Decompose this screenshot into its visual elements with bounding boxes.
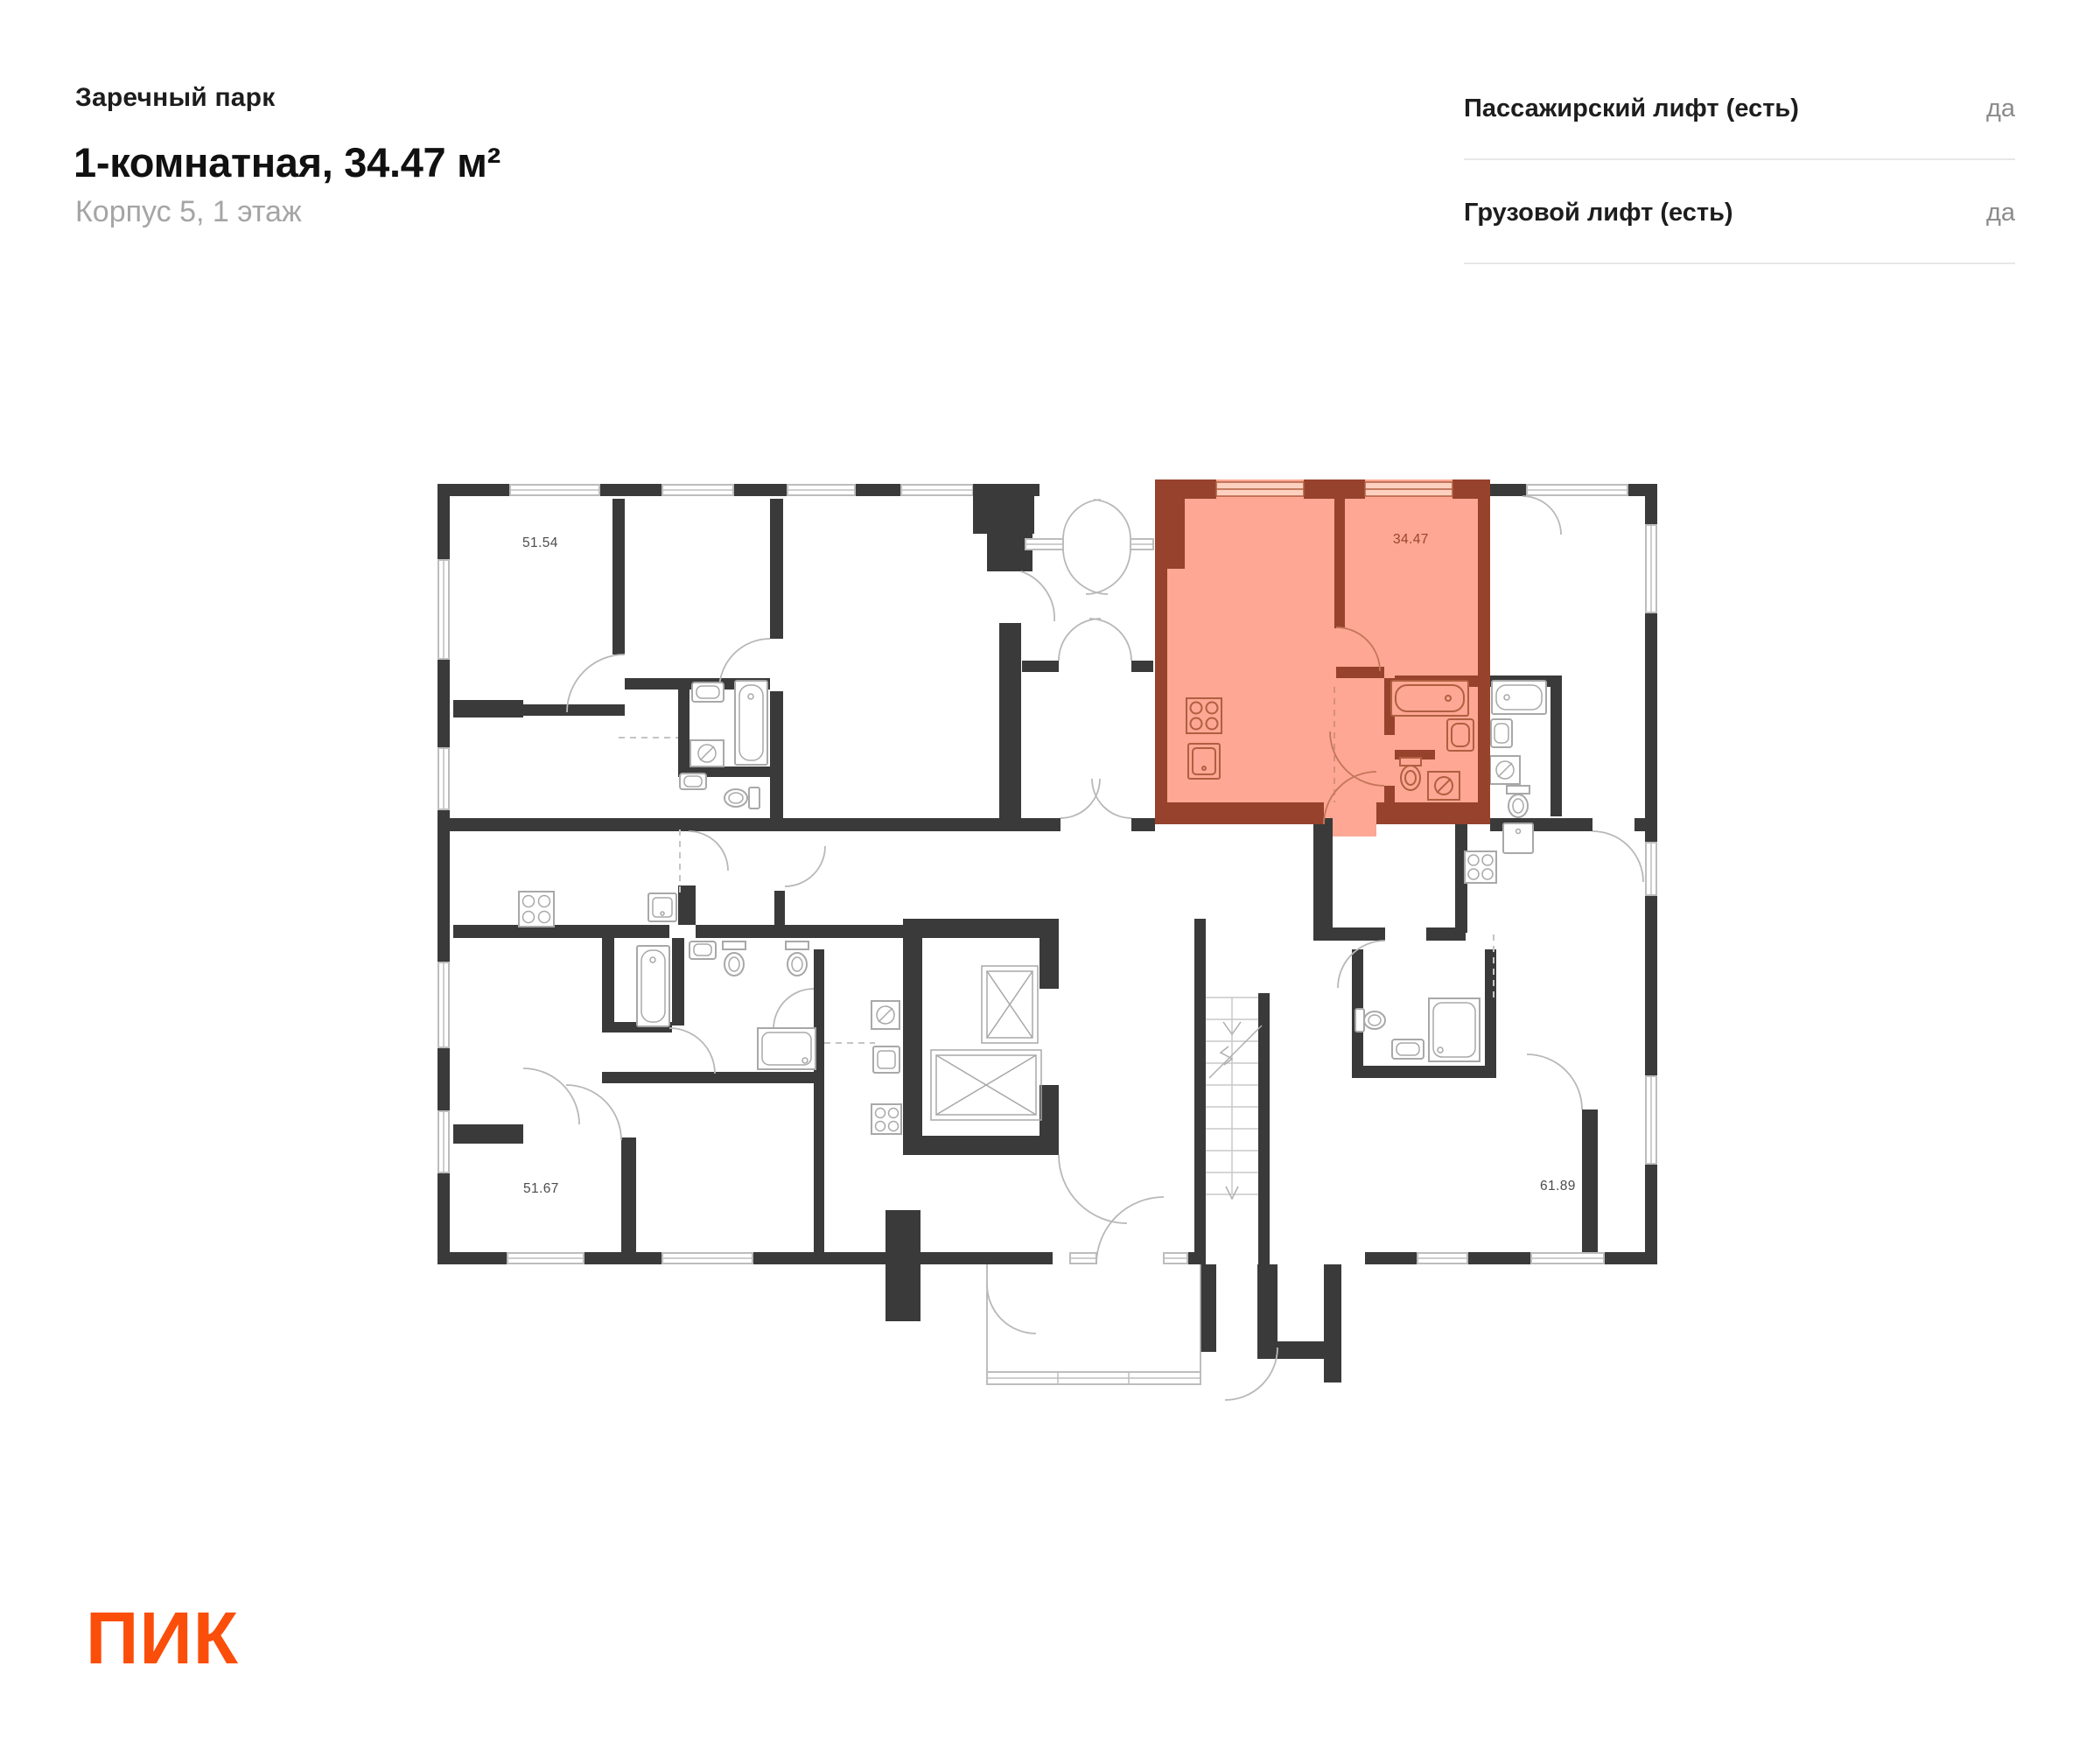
stove-icon [1465,851,1496,883]
window-bottom-6 [1531,1253,1604,1263]
bathtub-icon [735,681,767,765]
sink-icon [1491,719,1512,747]
area-label-61-89: 61.89 [1540,1179,1576,1193]
entrance-door-arc [1096,1197,1164,1264]
area-label-34-47-highlighted: 34.47 [1393,532,1429,547]
toilet-icon [1400,758,1421,790]
window-bottom-5 [1417,1253,1467,1263]
toilet-icon [786,941,808,976]
kitchen-sink-icon [1503,823,1533,853]
window-top-1 [510,485,599,495]
exterior-wall-right [1645,484,1657,1264]
window-top-5 [1527,485,1627,495]
floorplan-page: { "header": { "project": "Заречный парк"… [0,0,2100,1750]
toilet-icon [723,941,745,976]
washer-icon [1490,756,1520,784]
window-alcove-1 [1025,539,1063,549]
bathtub-icon [637,946,669,1026]
window-alcove-2 [1130,539,1153,549]
window-bottom-3 [1070,1253,1096,1263]
area-label-51-54: 51.54 [522,535,558,550]
window-right-3 [1646,1076,1656,1164]
sink-icon [689,941,716,959]
window-top-2 [662,485,733,495]
floorplan-drawing: 51.54 34.47 51.67 61.89 [0,0,2100,1750]
highlighted-window-1 [1216,482,1304,496]
washer-icon [871,1001,899,1029]
bathtub-icon [1492,681,1546,714]
toilet-icon [1507,786,1529,817]
window-top-3 [787,485,855,495]
window-bottom-4 [1164,1253,1187,1263]
stove-icon [519,892,554,927]
porch-window [987,1372,1200,1384]
staircase [1194,919,1270,1264]
sink-icon [680,773,706,789]
window-right-1 [1646,525,1656,612]
area-label-51-67: 51.67 [523,1181,559,1196]
sink-icon [873,1046,899,1073]
toilet-icon [1355,1009,1385,1032]
kitchen-sink-icon [648,893,676,921]
washer-icon [1428,772,1459,800]
window-bottom-2 [662,1253,752,1263]
toilet-icon [724,787,759,808]
bathtub-icon [1391,681,1468,716]
passenger-elevator-icon [982,966,1038,1043]
shower-icon [758,1028,815,1069]
exterior-wall-left [437,484,450,1264]
window-left-2 [438,748,449,809]
highlighted-window-2 [1365,482,1452,496]
stove-icon [1186,698,1221,733]
window-left-1 [438,560,449,659]
pik-logo: ПИК [86,1601,239,1675]
sink-icon [692,682,724,702]
freight-elevator-icon [931,1050,1041,1120]
window-left-4 [438,1111,449,1172]
entrance-area [885,1155,1341,1400]
shower-icon [1429,998,1480,1061]
washer-icon [690,740,724,766]
sink-icon [1447,719,1473,751]
sink-icon [1392,1039,1424,1059]
window-right-2 [1646,843,1656,895]
exterior-wall-bottom [437,1252,1657,1264]
window-bottom-1 [507,1253,584,1263]
window-top-4 [901,485,973,495]
elevator-block [903,919,1059,1155]
stove-icon [871,1104,901,1134]
window-left-3 [438,962,449,1047]
kitchen-sink-icon [1188,744,1220,779]
